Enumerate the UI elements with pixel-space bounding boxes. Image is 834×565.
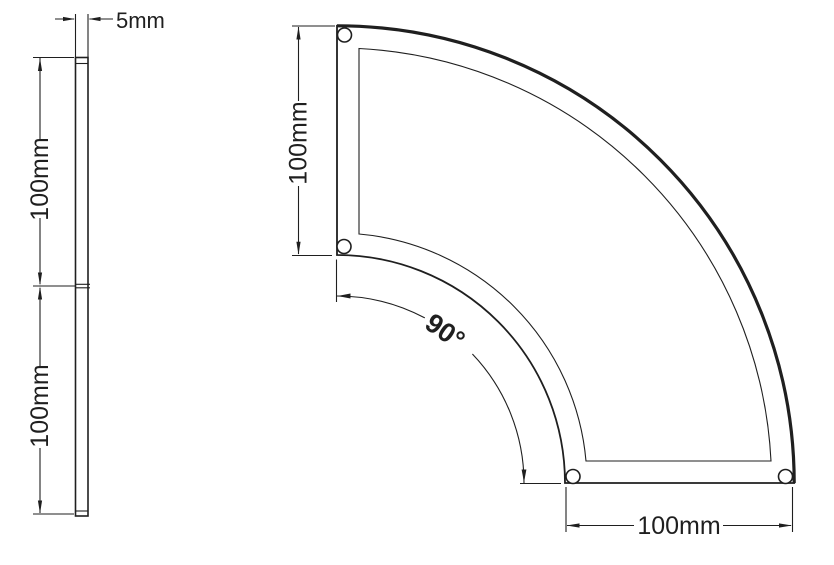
arrowhead-up [38, 58, 42, 71]
profile-strip-outline [76, 58, 89, 517]
bottom-width-dimension: 100mm [566, 487, 793, 540]
mounting-hole [337, 240, 351, 254]
arrowhead-left [567, 523, 580, 527]
angle-label: 90° [420, 307, 471, 355]
thickness-dimension: 5mm [55, 8, 165, 57]
mounting-hole [338, 28, 352, 42]
arrowhead-down [38, 273, 42, 286]
arc-body [337, 26, 794, 483]
arrowhead-right [779, 523, 792, 527]
angle-dimension-arc [337, 296, 425, 318]
upper-length-dimension: 100mm [26, 58, 75, 287]
lower-length-dimension: 100mm [26, 287, 74, 515]
arrowhead-left [89, 17, 101, 21]
arrowhead-up [38, 287, 42, 300]
arc-view: 100mm 100mm 90° [285, 26, 795, 540]
upper-length-label: 100mm [26, 137, 54, 220]
arrowhead-down [296, 242, 300, 255]
thickness-label: 5mm [116, 8, 165, 33]
arrowhead-down [522, 470, 527, 483]
arrowhead-up [296, 27, 300, 40]
arrowhead-right [63, 17, 75, 21]
arrowhead-down [38, 501, 42, 514]
angle-dimension-arc [472, 354, 524, 483]
radial-width-label: 100mm [285, 101, 313, 184]
bottom-width-label: 100mm [637, 512, 720, 540]
technical-drawing-canvas: 5mm 100mm 100mm [0, 0, 834, 565]
side-view: 5mm 100mm 100mm [26, 8, 165, 516]
radial-width-dimension: 100mm [285, 26, 336, 256]
arrowhead-left [338, 294, 351, 299]
mounting-hole [779, 470, 793, 484]
lower-length-label: 100mm [26, 364, 54, 447]
mounting-hole [566, 470, 580, 484]
